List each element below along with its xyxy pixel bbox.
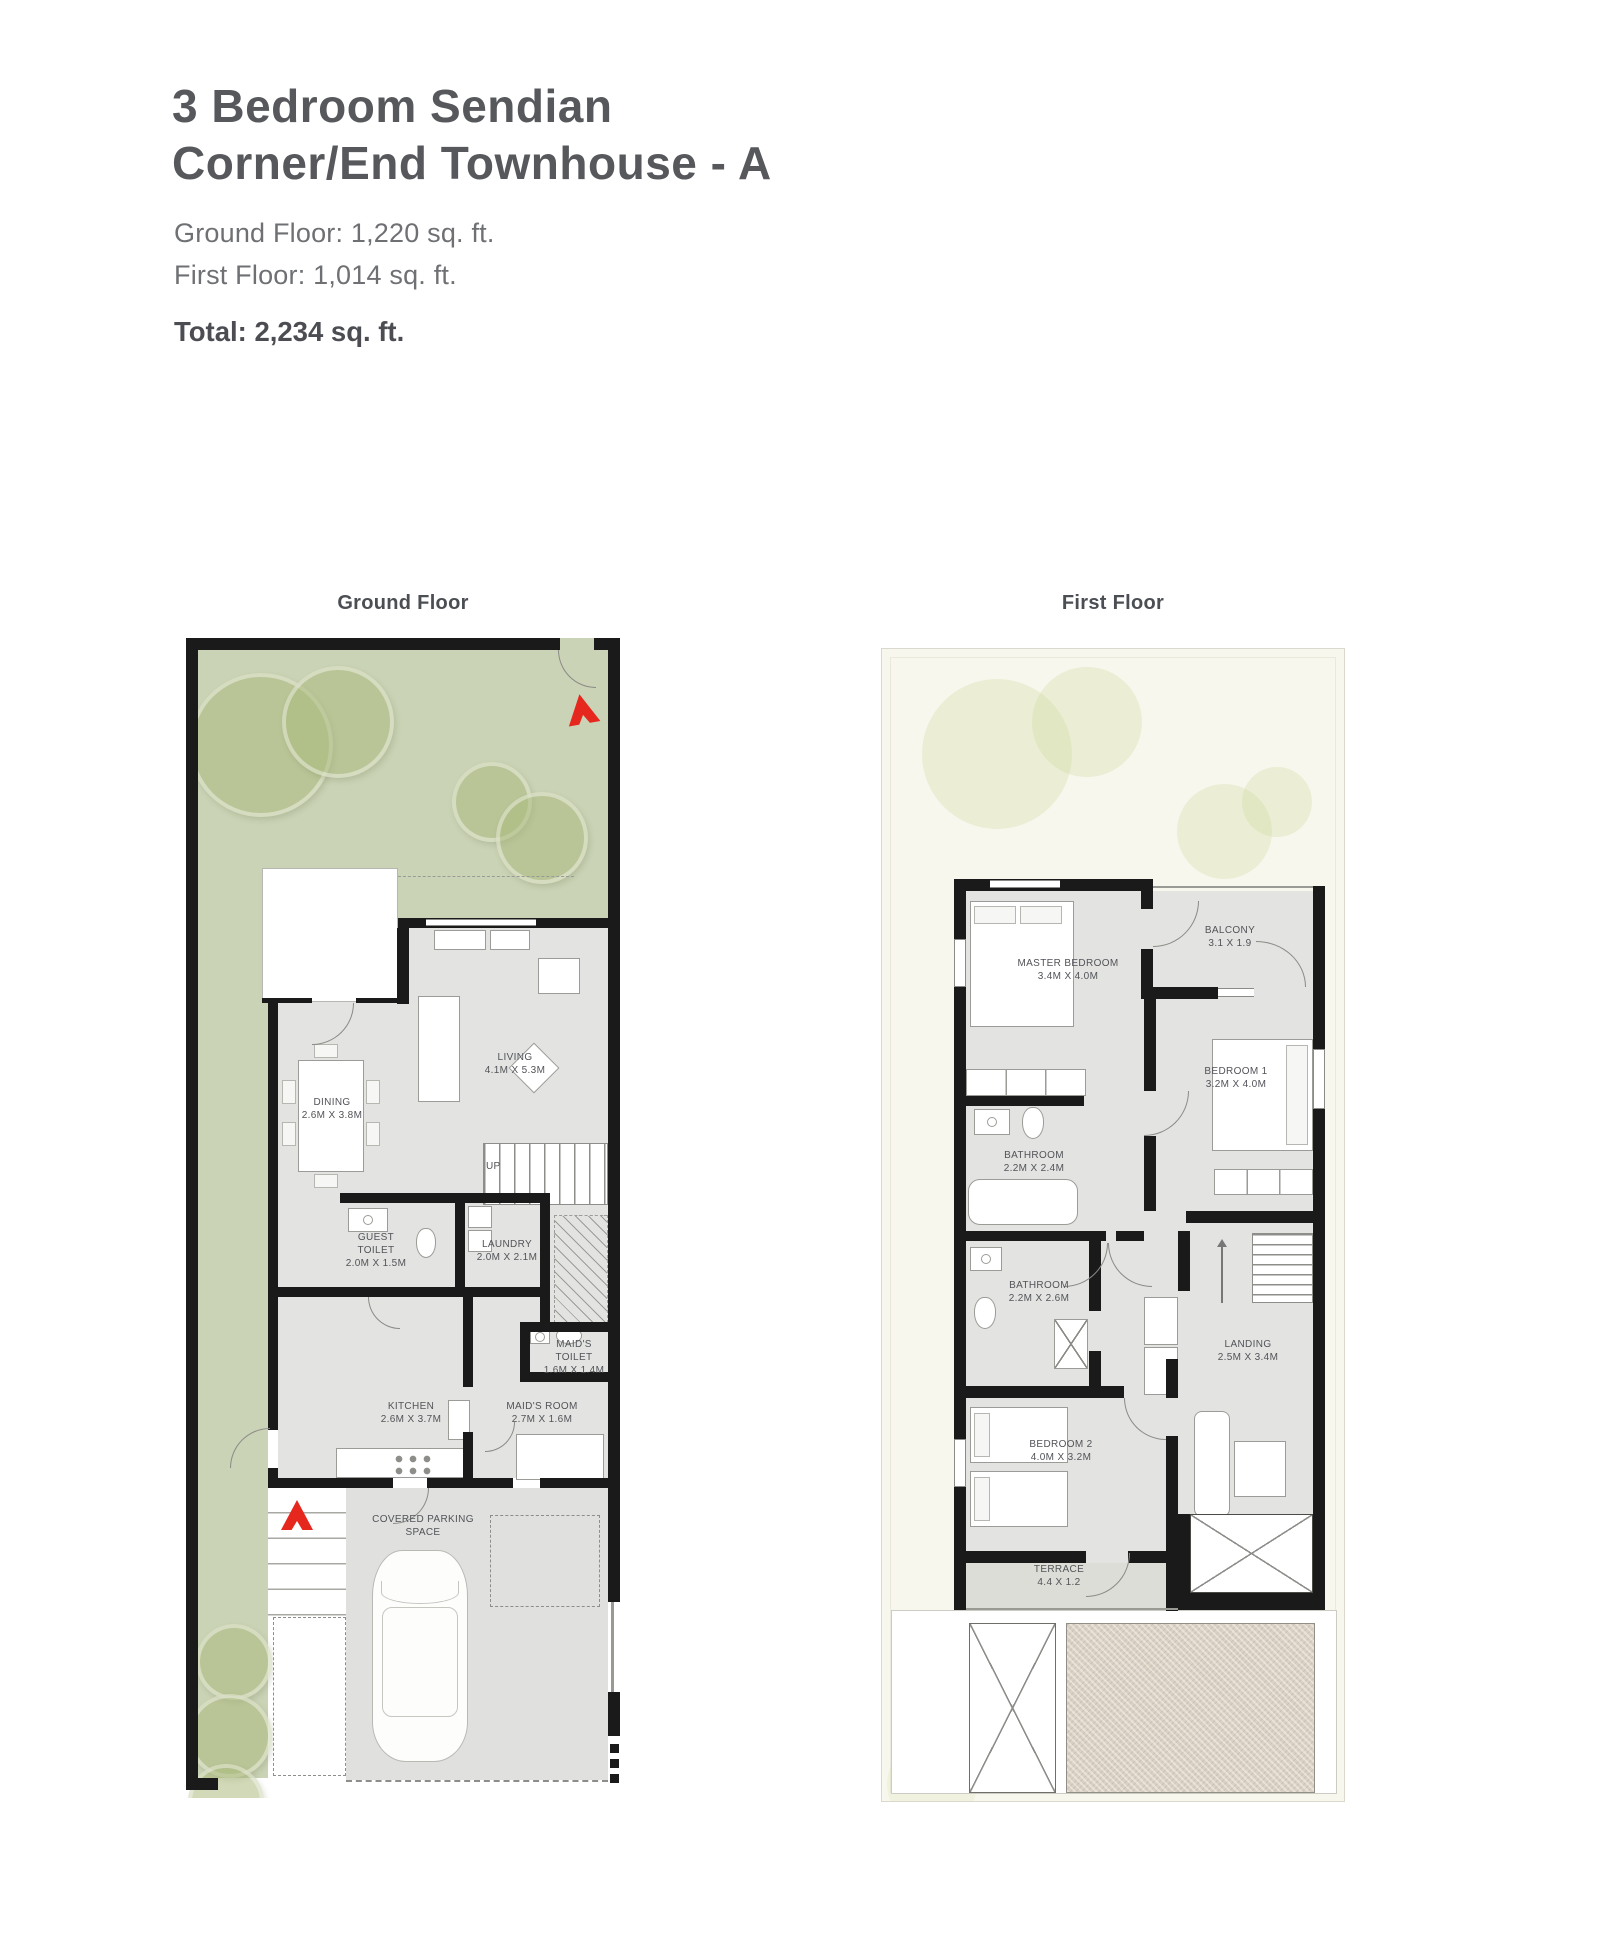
page-title: 3 Bedroom SendianCorner/End Townhouse - … <box>172 78 772 192</box>
toilet <box>974 1297 996 1329</box>
window-band <box>990 880 1060 888</box>
hall-closet <box>1144 1297 1178 1345</box>
tv-unit <box>434 930 486 950</box>
room-label-maids-room: MAID'S ROOM2.7M X 1.6M <box>506 1401 577 1427</box>
tree-icon <box>496 792 588 884</box>
wall-segment <box>1178 1593 1325 1610</box>
faint-tree-icon <box>1242 767 1312 837</box>
bed <box>516 1434 604 1480</box>
wall-segment <box>954 1551 1086 1563</box>
parking-roof-texture <box>1066 1623 1315 1793</box>
wall-segment <box>608 1692 620 1736</box>
bathtub <box>968 1179 1078 1225</box>
ground-floor-area-text: Ground Floor: 1,220 sq. ft. <box>174 218 495 249</box>
room-label-bedroom2: BEDROOM 24.0M X 3.2M <box>1029 1439 1092 1465</box>
pillow <box>974 1477 990 1521</box>
wardrobe <box>966 1069 1086 1096</box>
balcony-rail-line <box>1153 886 1313 888</box>
room-label-bathroom2: BATHROOM2.2M X 2.6M <box>1009 1280 1070 1306</box>
washer <box>468 1206 492 1228</box>
window-band <box>954 1439 966 1487</box>
wall-dash <box>610 1744 619 1753</box>
wall-segment <box>427 1478 513 1488</box>
room-label-terrace: TERRACE4.4 X 1.2 <box>1034 1564 1084 1590</box>
wall-segment <box>954 1096 1084 1106</box>
wall-segment <box>186 1778 218 1790</box>
chair <box>314 1044 338 1058</box>
wall-segment <box>397 928 409 1004</box>
window-band <box>1313 1049 1325 1109</box>
first-floor-area-text: First Floor: 1,014 sq. ft. <box>174 260 457 291</box>
sink <box>348 1208 388 1232</box>
armchair <box>538 958 580 994</box>
sofa <box>418 996 460 1102</box>
first-floor-plan-title: First Floor <box>881 592 1345 615</box>
stairs-upper-flight-dashed <box>554 1215 608 1323</box>
ground-floor-plan-title: Ground Floor <box>186 592 620 615</box>
wall-segment <box>954 1231 1106 1241</box>
title-line1: 3 Bedroom Sendian <box>172 80 612 132</box>
room-label-parking: COVERED PARKING SPACE <box>371 1514 475 1540</box>
wall-segment <box>954 879 966 1610</box>
parking-void-marker <box>490 1515 600 1607</box>
stairs <box>1252 1233 1313 1303</box>
wall-opening-line <box>611 1602 614 1702</box>
tree-icon <box>196 1624 272 1700</box>
wall-dash <box>610 1759 619 1768</box>
title-line2: Corner/End Townhouse - A <box>172 137 772 189</box>
chair <box>366 1122 380 1146</box>
wall-segment <box>186 638 198 1790</box>
entrance-patio <box>262 868 398 1002</box>
wall-segment <box>540 1193 550 1325</box>
pillow <box>974 1413 990 1457</box>
wall-segment <box>268 1002 278 1430</box>
void-marker <box>969 1623 1056 1793</box>
window-band <box>426 919 536 926</box>
tv-unit <box>490 930 530 950</box>
wall-segment <box>463 1297 473 1387</box>
wall-segment <box>1166 1436 1178 1611</box>
window-band <box>954 939 966 987</box>
wall-segment <box>1178 1231 1190 1291</box>
wall-segment <box>1151 987 1218 999</box>
wall-segment <box>954 1386 1124 1398</box>
room-label-guest-toilet: GUEST TOILET2.0M X 1.5M <box>346 1232 407 1270</box>
pillow <box>1286 1045 1308 1145</box>
wall-segment <box>186 638 560 650</box>
wall-segment <box>1141 879 1153 909</box>
double-height-void-marker <box>1190 1514 1313 1593</box>
entrance-arrow-icon <box>564 691 601 726</box>
ground-floor-plan: UP <box>186 630 620 1798</box>
wall-dash <box>610 1774 619 1783</box>
wall-segment <box>356 998 398 1003</box>
room-label-dining: DINING2.6M X 3.8M <box>302 1097 363 1123</box>
wardrobe <box>1214 1169 1313 1195</box>
table <box>1234 1441 1286 1497</box>
chair <box>282 1122 296 1146</box>
wall-segment <box>540 1478 608 1488</box>
terrace-edge-line <box>966 1608 1178 1610</box>
toilet <box>416 1228 436 1258</box>
wall-segment <box>268 1287 540 1297</box>
wall-segment <box>455 1203 465 1287</box>
wall-segment <box>1144 999 1156 1091</box>
brochure-page: 3 Bedroom SendianCorner/End Townhouse - … <box>0 0 1620 1955</box>
wall-segment <box>608 638 620 1602</box>
car-illustration <box>372 1550 468 1762</box>
room-label-kitchen: KITCHEN2.6M X 3.7M <box>381 1401 442 1427</box>
wall-segment <box>340 1193 540 1203</box>
stairs-direction-line <box>1221 1247 1223 1303</box>
chair <box>282 1080 296 1104</box>
total-area-text: Total: 2,234 sq. ft. <box>174 316 404 348</box>
setback-dashed-line <box>398 876 574 877</box>
window-band <box>1218 988 1254 997</box>
cooktop <box>391 1452 435 1478</box>
wall-segment <box>1116 1231 1144 1241</box>
wall-segment <box>1128 1551 1178 1563</box>
pergola-void-marker <box>273 1617 346 1776</box>
wall-segment <box>262 998 312 1003</box>
wall-segment <box>1186 1211 1313 1223</box>
sink <box>974 1109 1010 1135</box>
faint-tree-icon <box>1032 667 1142 777</box>
room-label-master-bedroom: MASTER BEDROOM3.4M X 4.0M <box>1017 958 1118 984</box>
chair <box>314 1174 338 1188</box>
wall-segment <box>520 1322 608 1332</box>
sofa <box>1194 1411 1230 1517</box>
parking-edge-dashed <box>346 1780 608 1782</box>
room-label-maids-toilet: MAID'S TOILET1.6M X 1.4M <box>544 1339 605 1377</box>
sink <box>970 1247 1002 1271</box>
wall-segment <box>1166 1359 1178 1398</box>
wall-segment <box>1178 1514 1190 1593</box>
wall-segment <box>1313 886 1325 1610</box>
pillow <box>974 906 1016 924</box>
first-floor-plan: MASTER BEDROOM3.4M X 4.0M BALCONY3.1 X 1… <box>881 648 1345 1802</box>
wall-segment <box>1144 1136 1156 1211</box>
toilet <box>1022 1107 1044 1139</box>
room-label-laundry: LAUNDRY2.0M X 2.1M <box>477 1239 538 1265</box>
wall-segment <box>268 1478 393 1488</box>
chair <box>366 1080 380 1104</box>
tree-icon <box>282 666 394 778</box>
room-label-landing: LANDING2.5M X 3.4M <box>1218 1339 1279 1365</box>
room-label-bedroom1: BEDROOM 13.2M X 4.0M <box>1204 1066 1267 1092</box>
room-label-bathroom1: BATHROOM2.2M X 2.4M <box>1004 1150 1065 1176</box>
entrance-arrow-icon <box>281 1500 313 1530</box>
stairs-up-label: UP <box>486 1161 501 1172</box>
room-label-balcony: BALCONY3.1 X 1.9 <box>1205 925 1255 951</box>
room-label-living: LIVING4.1M X 5.3M <box>485 1052 546 1078</box>
stairs-direction-arrow <box>1217 1239 1227 1247</box>
shower <box>1054 1319 1088 1369</box>
pillow <box>1020 906 1062 924</box>
